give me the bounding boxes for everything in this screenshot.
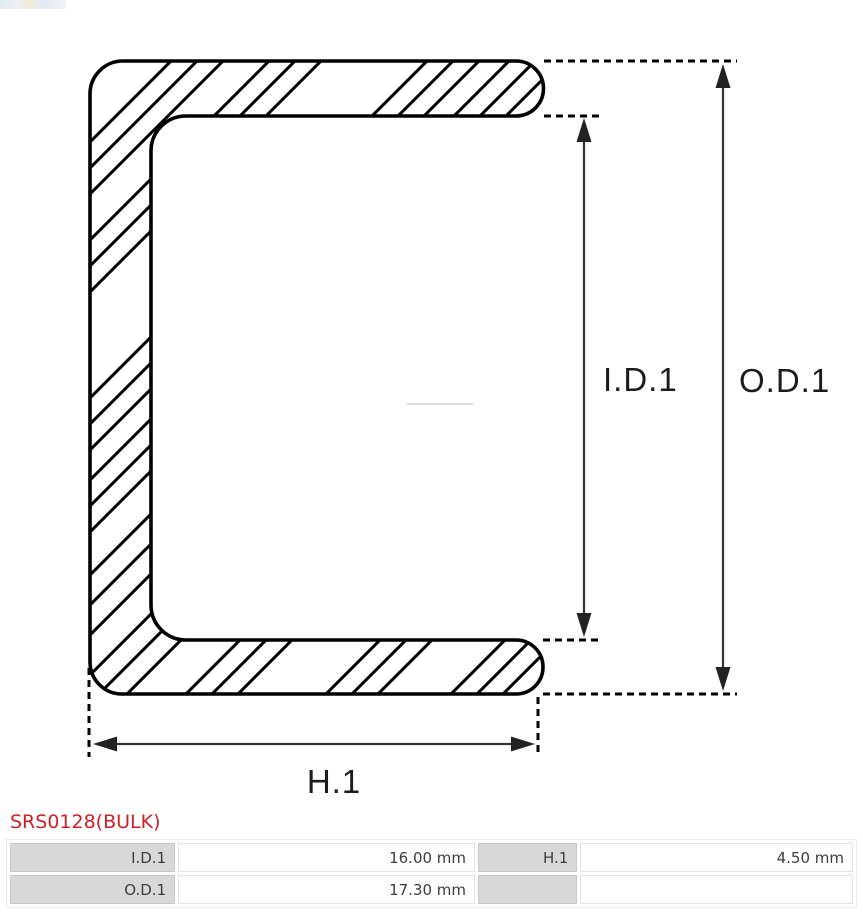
label-outer-diameter: O.D.1 [739, 362, 830, 399]
table-row: I.D.1 16.00 mm H.1 4.50 mm [10, 843, 853, 872]
cross-section-outline [90, 61, 543, 694]
label-height: H.1 [307, 763, 361, 800]
spec-name-od1: O.D.1 [10, 875, 175, 904]
spec-name-h1: H.1 [478, 843, 577, 872]
table-row: O.D.1 17.30 mm [10, 875, 853, 904]
dimension-height [93, 737, 535, 752]
spec-name-empty [478, 875, 577, 904]
technical-drawing: I.D.1 O.D.1 H.1 [0, 0, 863, 806]
product-code: SRS0128(BULK) [10, 811, 161, 833]
spec-name-id1: I.D.1 [10, 843, 175, 872]
product-drawing-page: { "product": { "code": "SRS0128(BULK)" }… [0, 0, 863, 913]
spec-value-h1: 4.50 mm [580, 843, 853, 872]
spec-value-id1: 16.00 mm [178, 843, 475, 872]
label-inner-diameter: I.D.1 [603, 361, 678, 398]
spec-value-empty [580, 875, 853, 904]
spec-table-container: I.D.1 16.00 mm H.1 4.50 mm O.D.1 17.30 m… [6, 839, 857, 908]
dimension-inner-diameter [577, 118, 592, 637]
spec-table: I.D.1 16.00 mm H.1 4.50 mm O.D.1 17.30 m… [6, 839, 857, 908]
dimension-outer-diameter [716, 64, 731, 691]
spec-value-od1: 17.30 mm [178, 875, 475, 904]
